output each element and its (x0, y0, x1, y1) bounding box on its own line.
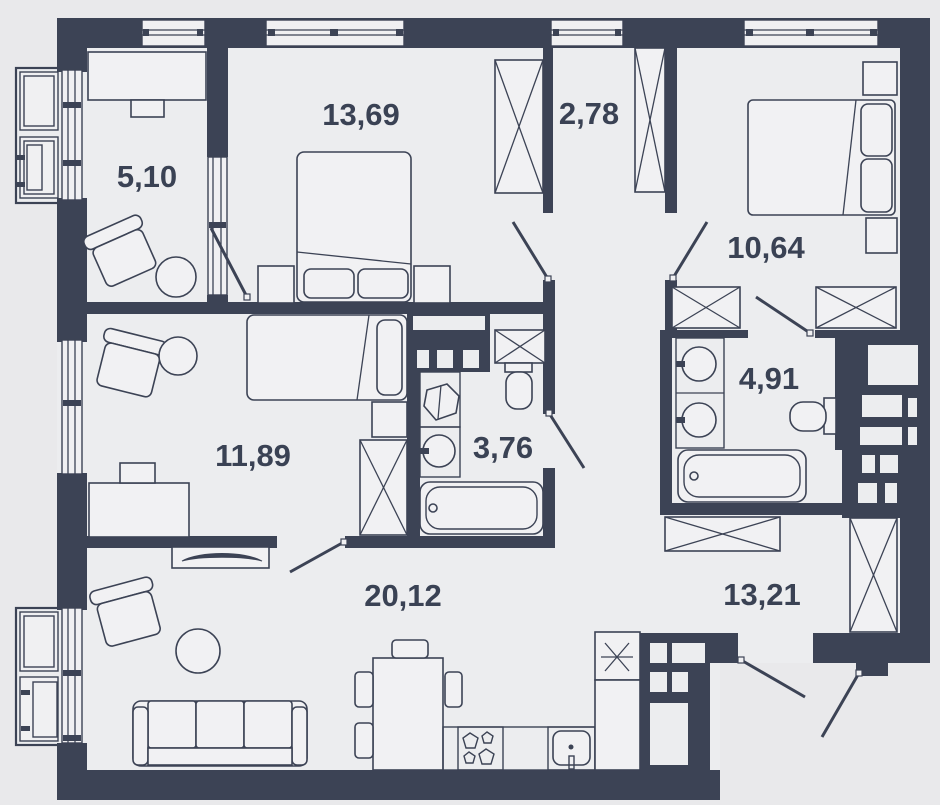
desk (89, 483, 189, 537)
keyboard-tray (131, 100, 164, 117)
label-room-3-76: 3,76 (473, 430, 533, 465)
faucet (690, 472, 698, 480)
wardrobe (495, 60, 543, 193)
window-room-10-64 (744, 20, 878, 46)
pillow (358, 269, 408, 298)
sink (682, 347, 716, 381)
wardrobe (360, 440, 407, 535)
pillow (377, 320, 402, 395)
wardrobe (850, 518, 897, 632)
kitchen-cabinet (595, 680, 640, 770)
toilet (790, 398, 836, 434)
chair (355, 672, 373, 707)
shelf-unit (495, 330, 545, 363)
window-room-13-69 (266, 20, 404, 46)
label-room-5-10: 5,10 (117, 159, 177, 194)
stool (156, 257, 196, 297)
window-room-11-89 (62, 340, 82, 474)
wardrobe (816, 287, 896, 328)
pillow (861, 104, 892, 156)
tv-stand (172, 547, 269, 568)
chair (355, 723, 373, 758)
label-room-10-64: 10,64 (727, 230, 805, 265)
faucet (429, 504, 437, 512)
window-room-2-78 (551, 20, 623, 46)
floor-plan: 5,10 13,69 2,78 10,64 4,91 3,76 11,89 20… (0, 0, 940, 805)
chair (392, 640, 428, 658)
balcony-top-left (16, 68, 64, 203)
pillow (304, 269, 354, 298)
nightstand (863, 62, 897, 95)
label-room-13-69: 13,69 (322, 97, 400, 132)
wardrobe (665, 517, 780, 551)
round-table (159, 337, 197, 375)
desk (88, 52, 206, 100)
label-room-20-12: 20,12 (364, 578, 442, 613)
nightstand (866, 218, 897, 253)
toilet (505, 363, 532, 409)
desk-shelf (120, 463, 155, 483)
label-room-4-91: 4,91 (739, 361, 799, 396)
label-room-11-89: 11,89 (215, 438, 291, 473)
window-balcony-door-5-10 (62, 70, 82, 200)
floor-plan-drawing: 5,10 13,69 2,78 10,64 4,91 3,76 11,89 20… (0, 0, 940, 805)
bathtub (420, 482, 543, 534)
room-2-78 (635, 48, 665, 192)
wardrobe (672, 287, 740, 328)
fridge (595, 632, 640, 680)
window-balcony-door-living (62, 608, 82, 743)
nightstand (258, 266, 294, 303)
nightstand (414, 266, 450, 303)
label-room-13-21: 13,21 (723, 577, 801, 612)
coffee-table (176, 629, 220, 673)
window-room-5-10 (142, 20, 205, 46)
label-room-2-78: 2,78 (559, 96, 619, 131)
chair (445, 672, 462, 707)
dining-table (373, 658, 443, 770)
pillow (861, 159, 892, 212)
sink (682, 403, 716, 437)
bathtub (678, 450, 806, 502)
balcony-bottom-left (16, 608, 64, 745)
wardrobe (635, 48, 665, 192)
glass-partition-5-10 (208, 157, 227, 295)
sofa (133, 701, 307, 766)
nightstand (372, 402, 407, 437)
